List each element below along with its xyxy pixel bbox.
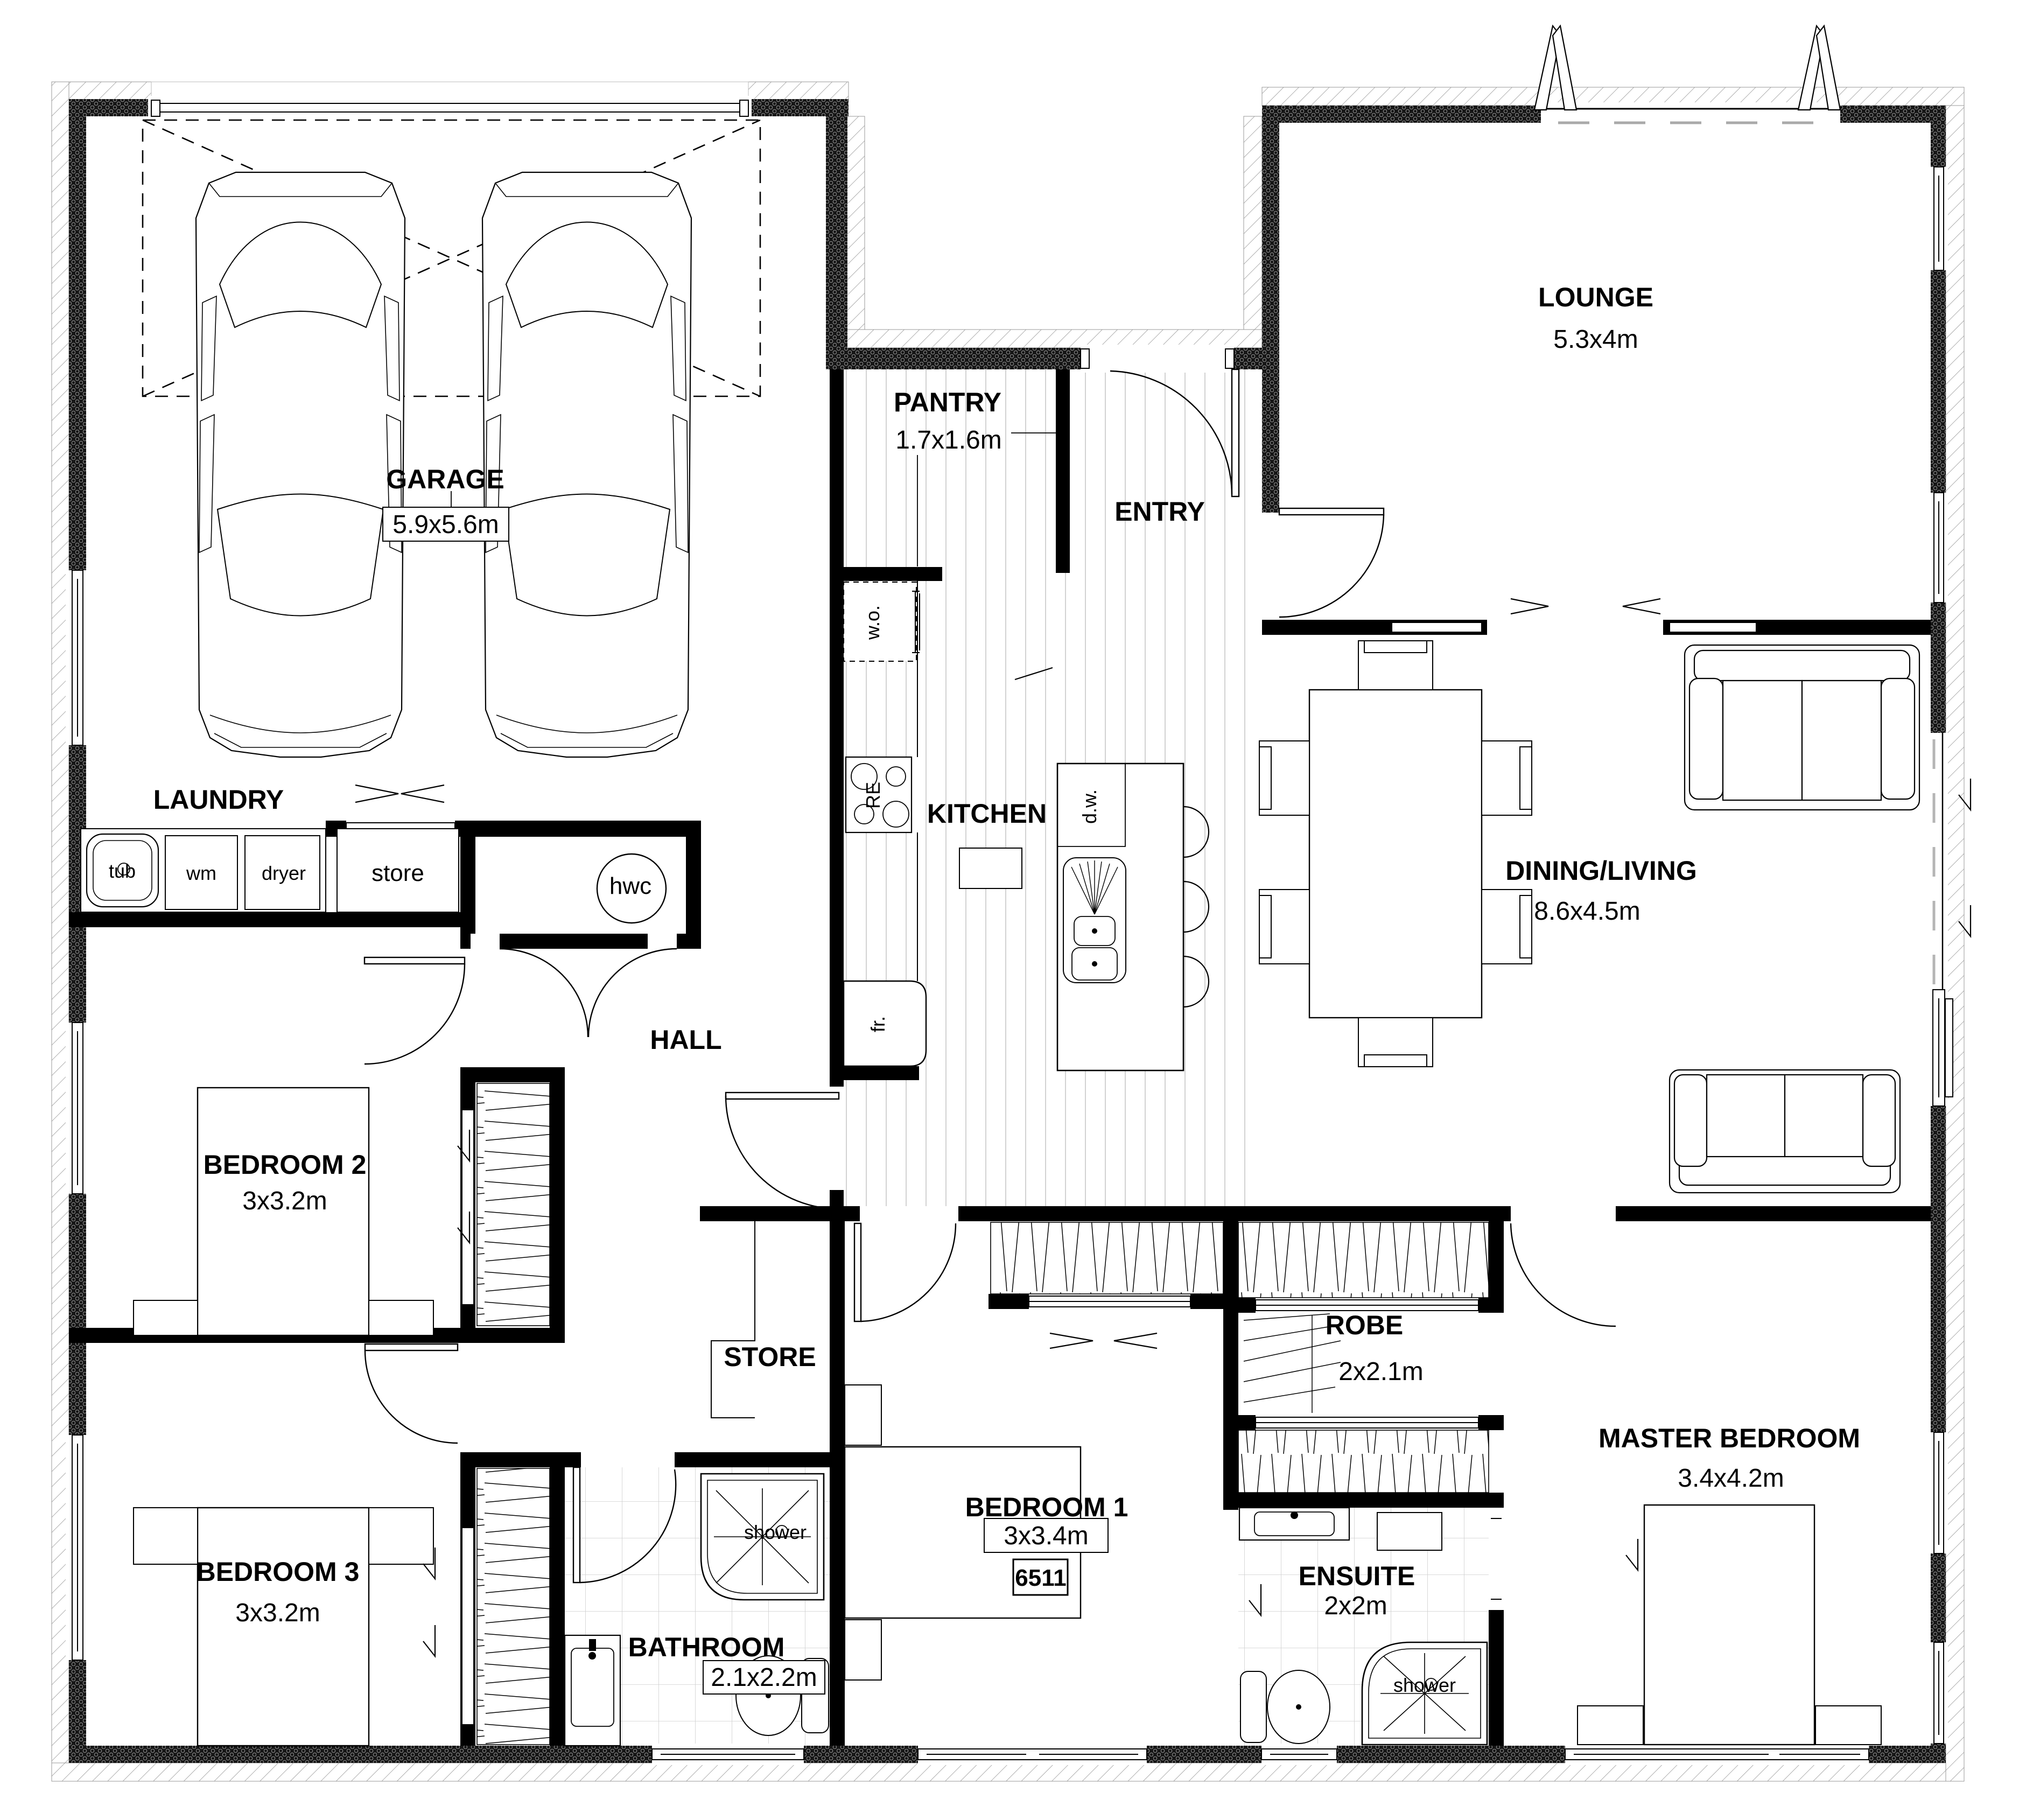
svg-text:3x3.2m: 3x3.2m [242,1187,327,1215]
svg-text:ENSUITE: ENSUITE [1299,1561,1415,1591]
svg-text:shower: shower [1393,1674,1456,1696]
svg-text:STORE: STORE [724,1342,816,1372]
svg-text:w.o.: w.o. [861,605,884,640]
svg-text:2.1x2.2m: 2.1x2.2m [711,1663,817,1692]
svg-text:6511: 6511 [1015,1565,1066,1591]
svg-text:shower: shower [744,1521,807,1543]
svg-text:8.6x4.5m: 8.6x4.5m [1534,897,1640,926]
svg-text:3.4x4.2m: 3.4x4.2m [1678,1464,1784,1493]
svg-text:LOUNGE: LOUNGE [1538,282,1653,312]
svg-text:RE: RE [862,782,884,809]
svg-text:BEDROOM 1: BEDROOM 1 [965,1492,1128,1522]
svg-text:2x2m: 2x2m [1324,1592,1387,1620]
svg-text:ROBE: ROBE [1326,1310,1403,1340]
svg-text:store: store [371,860,424,886]
svg-text:3x3.2m: 3x3.2m [235,1599,320,1627]
svg-text:BEDROOM 3: BEDROOM 3 [197,1557,360,1587]
svg-text:BEDROOM 2: BEDROOM 2 [204,1150,367,1180]
svg-text:GARAGE: GARAGE [386,464,504,494]
svg-text:BATHROOM: BATHROOM [628,1632,785,1662]
svg-text:KITCHEN: KITCHEN [927,799,1047,829]
svg-text:2x2.1m: 2x2.1m [1338,1357,1423,1386]
svg-text:fr.: fr. [867,1016,889,1032]
svg-text:PANTRY: PANTRY [894,387,1001,417]
svg-text:HALL: HALL [650,1025,721,1055]
svg-text:wm: wm [186,862,216,884]
svg-text:d.w.: d.w. [1078,789,1100,824]
svg-text:3x3.4m: 3x3.4m [1004,1522,1088,1550]
svg-text:5.3x4m: 5.3x4m [1553,325,1638,354]
svg-text:hwc: hwc [609,873,651,899]
svg-text:5.9x5.6m: 5.9x5.6m [392,510,499,539]
svg-text:MASTER BEDROOM: MASTER BEDROOM [1599,1423,1860,1453]
svg-text:1.7x1.6m: 1.7x1.6m [895,426,1001,454]
svg-text:ENTRY: ENTRY [1114,496,1205,527]
svg-text:DINING/LIVING: DINING/LIVING [1505,856,1697,886]
svg-text:dryer: dryer [262,862,306,884]
svg-text:LAUNDRY: LAUNDRY [153,785,284,815]
